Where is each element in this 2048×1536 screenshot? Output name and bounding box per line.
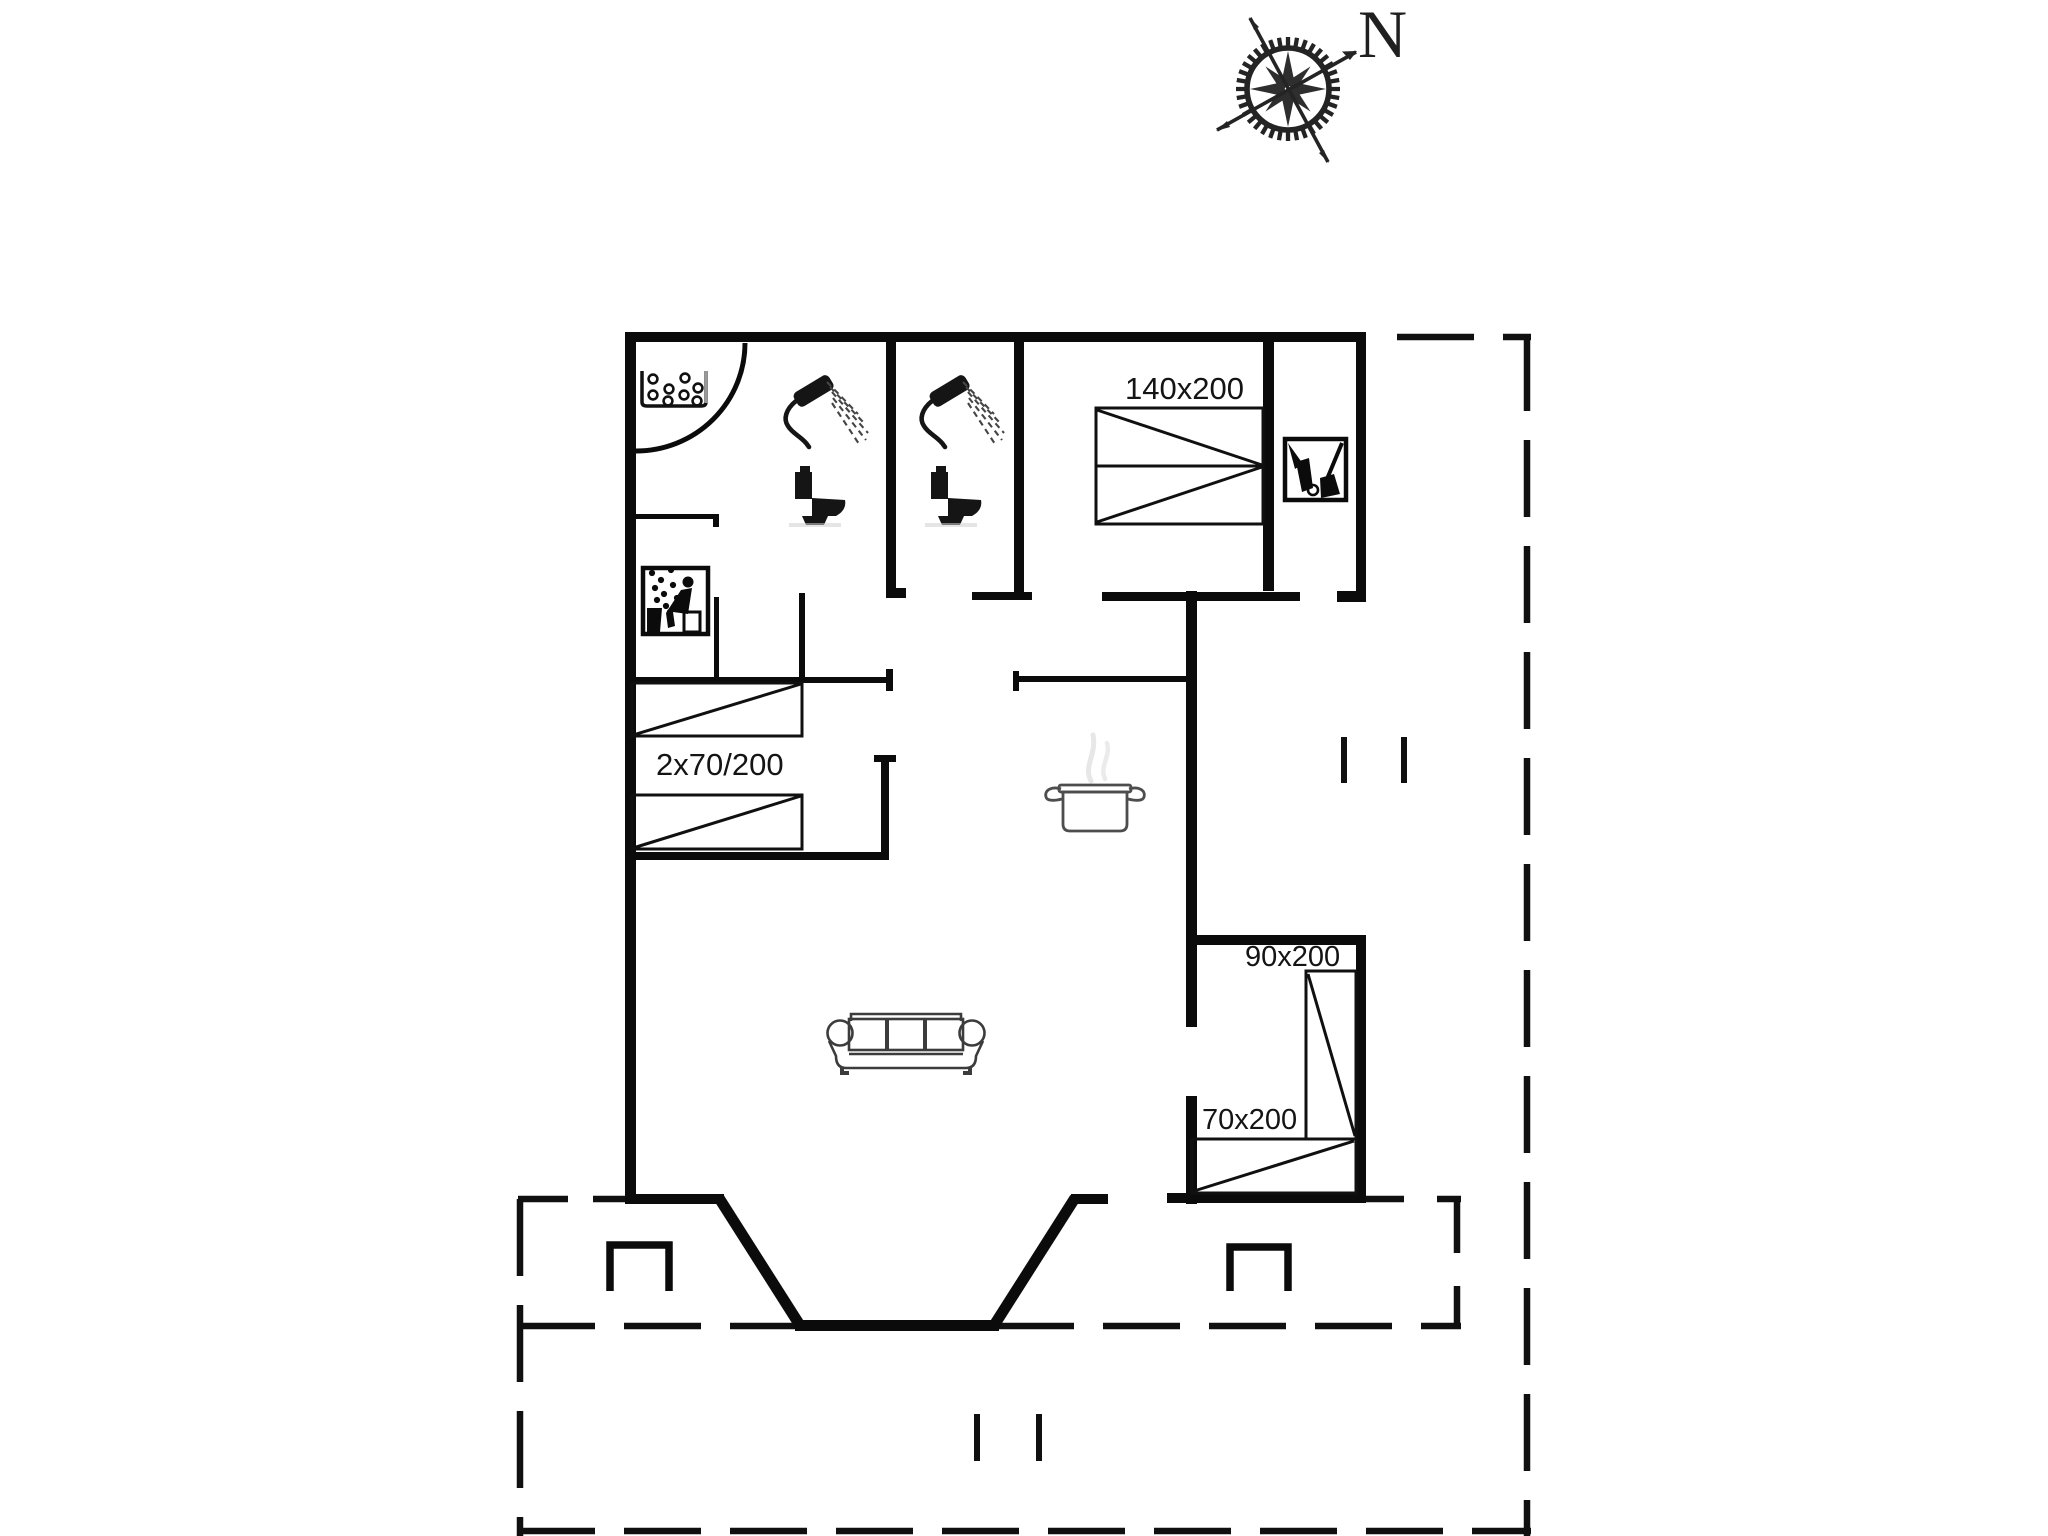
svg-text:N: N [1358,0,1407,72]
svg-text:140x200: 140x200 [1125,371,1244,406]
svg-text:2x70/200: 2x70/200 [656,747,784,782]
svg-text:70x200: 70x200 [1202,1104,1297,1136]
svg-text:90x200: 90x200 [1245,941,1340,973]
